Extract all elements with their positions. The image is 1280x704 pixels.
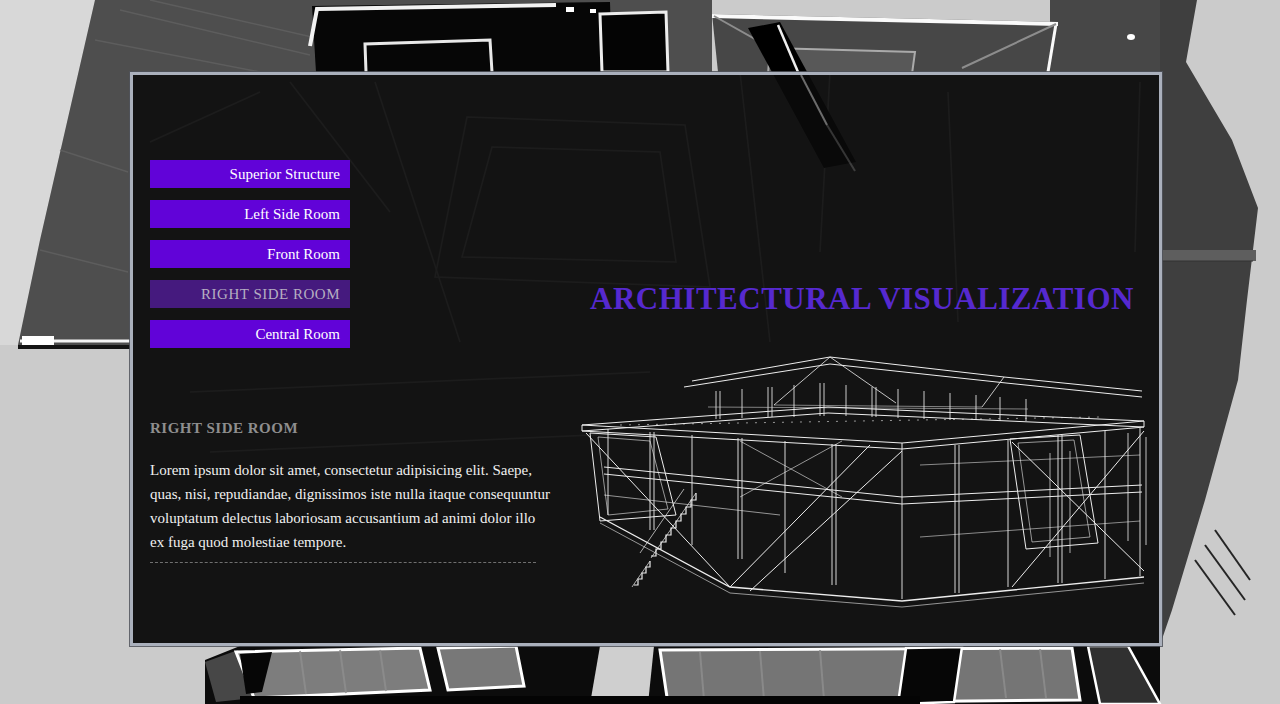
- nav-button-central-room[interactable]: Central Room: [150, 320, 350, 348]
- overlay-panel: Superior Structure Left Side Room Front …: [130, 72, 1162, 646]
- nav-button-right-side-room[interactable]: RIGHT SIDE ROOM: [150, 280, 350, 308]
- nav-button-left-side-room[interactable]: Left Side Room: [150, 200, 350, 228]
- room-description: Lorem ipsum dolor sit amet, consectetur …: [150, 458, 552, 554]
- page-title: ARCHITECTURAL VISUALIZATION: [571, 281, 1153, 317]
- nav-button-superior-structure[interactable]: Superior Structure: [150, 160, 350, 188]
- dashed-divider: [150, 562, 536, 563]
- room-heading: RIGHT SIDE ROOM: [150, 420, 298, 437]
- house-wireframe-illustration: [580, 345, 1150, 615]
- nav-button-front-room[interactable]: Front Room: [150, 240, 350, 268]
